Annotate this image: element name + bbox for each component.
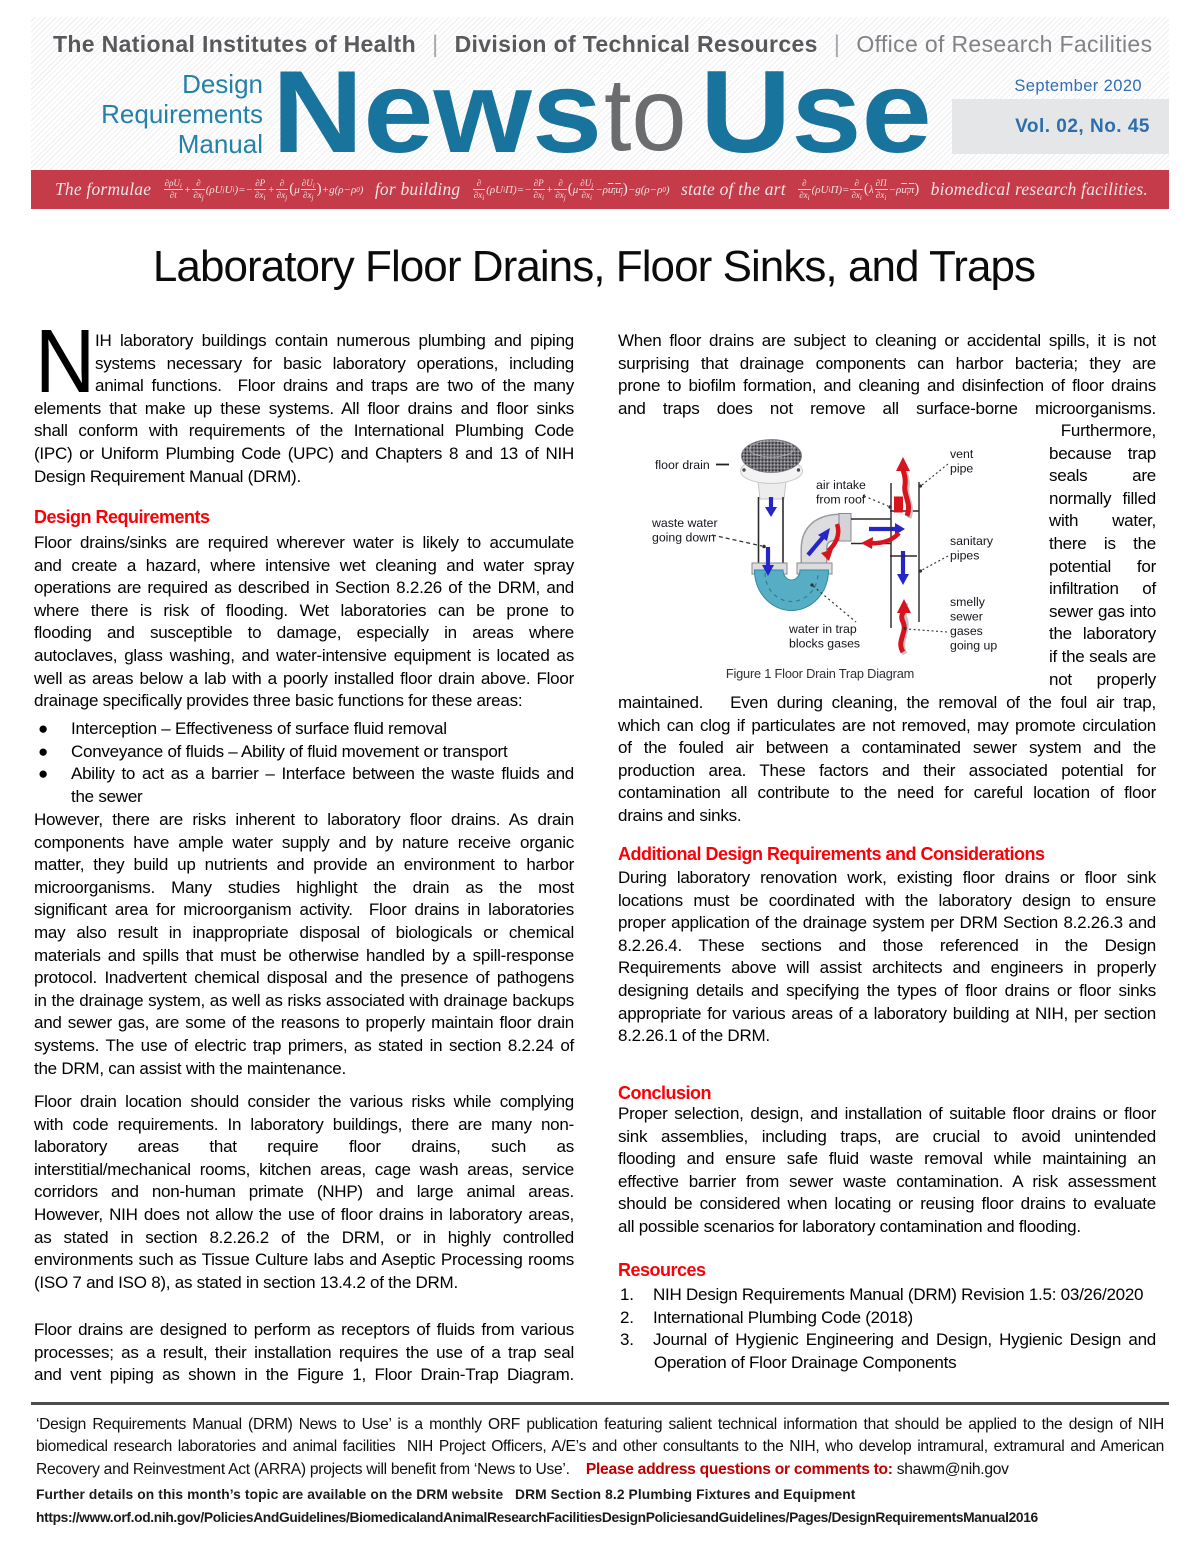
svg-text:Figure 1 Floor Drain Trap Diag: Figure 1 Floor Drain Trap Diagram bbox=[726, 666, 914, 681]
svg-text:floor drain: floor drain bbox=[655, 458, 710, 472]
svg-text:vent: vent bbox=[950, 447, 974, 461]
svg-text:blocks gases: blocks gases bbox=[789, 637, 860, 651]
svg-text:waste water: waste water bbox=[651, 516, 718, 530]
svg-text:sanitary: sanitary bbox=[950, 534, 994, 548]
svg-text:air intake: air intake bbox=[816, 478, 866, 492]
svg-text:smelly: smelly bbox=[950, 595, 986, 609]
svg-text:from roof: from roof bbox=[816, 493, 866, 507]
svg-text:pipe: pipe bbox=[950, 462, 973, 476]
svg-text:going down: going down bbox=[652, 531, 715, 545]
svg-text:gases: gases bbox=[950, 624, 983, 638]
svg-text:sewer: sewer bbox=[950, 610, 983, 624]
svg-text:going up: going up bbox=[950, 639, 997, 653]
svg-text:pipes: pipes bbox=[950, 549, 979, 563]
svg-text:water in trap: water in trap bbox=[788, 622, 857, 636]
